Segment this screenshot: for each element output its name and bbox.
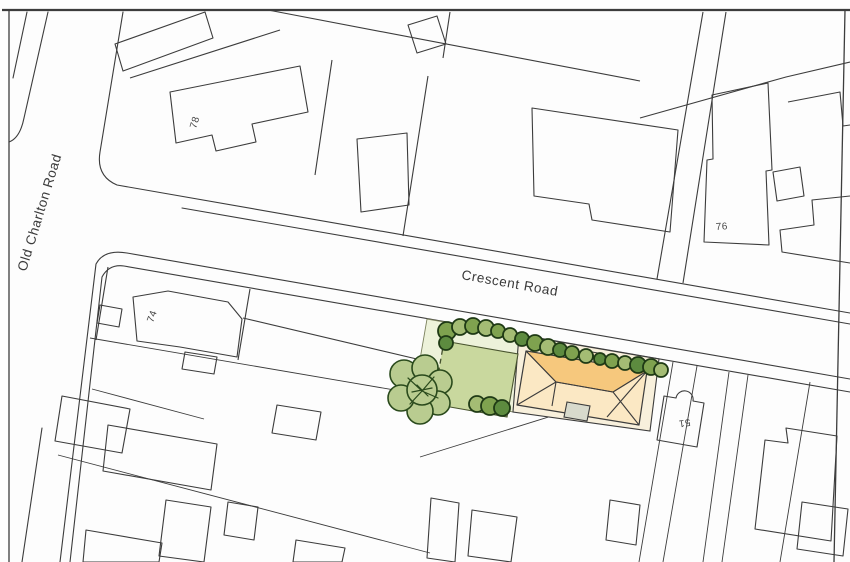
building-outline	[159, 500, 211, 562]
boundary-line	[238, 289, 250, 360]
building-outline	[780, 196, 850, 263]
buildings-south	[55, 267, 848, 562]
building-outline	[532, 108, 678, 232]
boundary-line	[722, 375, 748, 562]
bush	[494, 400, 510, 416]
house-number-76: 76	[715, 221, 728, 233]
boundary-line	[268, 10, 640, 81]
boundary-line	[130, 30, 280, 78]
bush	[594, 353, 606, 365]
label-crescent-road: Crescent Road	[460, 267, 559, 299]
house-number-74: 74	[145, 309, 159, 324]
bush	[565, 346, 579, 360]
garden-line	[92, 389, 204, 419]
site-plan-page: Old Charlton Road Crescent Road 78 74 76…	[0, 0, 850, 562]
building-outline-76	[704, 83, 772, 245]
house-number-78: 78	[188, 115, 202, 130]
buildings-north	[115, 10, 850, 283]
road-line	[70, 266, 850, 562]
building-outline	[427, 498, 459, 562]
building-outline	[293, 540, 345, 562]
road-line	[9, 12, 48, 142]
boundary-line	[703, 372, 729, 562]
boundary-line	[443, 12, 450, 58]
road-line	[13, 12, 27, 78]
boundary-line	[403, 76, 428, 236]
boundary-line	[657, 12, 703, 279]
road-line	[22, 428, 42, 562]
building-outline	[115, 12, 213, 71]
building-outline	[55, 396, 130, 453]
building-outline	[773, 167, 804, 201]
building-outline	[606, 500, 640, 545]
boundary-line	[243, 318, 421, 360]
bush	[605, 354, 619, 368]
bush	[439, 336, 453, 350]
building-outline	[224, 502, 258, 540]
porch	[564, 402, 590, 421]
road-line	[182, 208, 850, 324]
building-outline	[468, 510, 517, 562]
building-outline	[272, 405, 321, 440]
building-outline	[182, 352, 217, 374]
building-outline	[103, 425, 217, 490]
boundary-line	[640, 62, 850, 118]
building-outline	[83, 530, 162, 562]
building-outline	[755, 428, 837, 541]
building-outline	[797, 502, 848, 556]
house-number-51: 51	[678, 416, 691, 429]
building-outline	[788, 92, 850, 126]
bush	[579, 349, 593, 363]
building-outline	[408, 16, 446, 53]
label-old-charlton-road: Old Charlton Road	[15, 152, 65, 273]
boundary-line	[315, 60, 332, 175]
bush	[654, 363, 668, 377]
building-outline	[357, 133, 409, 212]
building-outline-78	[170, 66, 308, 151]
building-outline-74	[133, 291, 242, 357]
site-plan-map: Old Charlton Road Crescent Road 78 74 76…	[0, 0, 850, 562]
